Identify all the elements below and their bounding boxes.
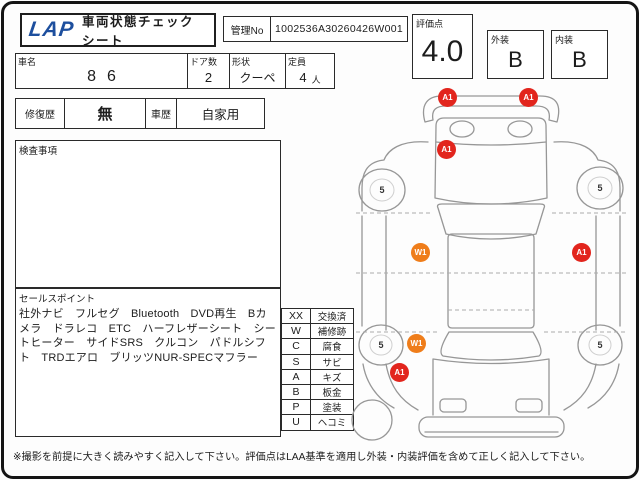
inspection-items-content xyxy=(16,157,280,159)
rear-bumper xyxy=(419,417,564,437)
legend-meaning: 補修跡 xyxy=(311,324,354,339)
inspection-items-box: 検査事項 xyxy=(15,140,281,288)
capacity-value-wrap: 4人 xyxy=(286,68,334,88)
legend-meaning: キズ xyxy=(311,369,354,384)
damage-marker-left-rear-arch: W1 xyxy=(407,334,426,353)
doors-label: ドア数 xyxy=(188,54,229,68)
legend-meaning: 腐食 xyxy=(311,339,354,354)
legend-row: P塗装 xyxy=(282,400,354,415)
damage-marker-left-rear-quarter: A1 xyxy=(390,363,409,382)
legend-row: Aキズ xyxy=(282,369,354,384)
sales-points-box: セールスポイント 社外ナビ フルセグ Bluetooth DVD再生 Bカメラ … xyxy=(15,288,281,437)
sales-points-label: セールスポイント xyxy=(16,289,280,305)
sales-points-content: 社外ナビ フルセグ Bluetooth DVD再生 Bカメラ ドラレコ ETC … xyxy=(16,305,280,365)
header-logo-box: LAP 車両状態チェックシート xyxy=(20,13,216,47)
legend-code: B xyxy=(282,384,311,399)
exterior-score-value: B xyxy=(488,42,543,78)
tail-light-left xyxy=(440,399,466,412)
vehicle-name-cell: 車名 86 xyxy=(16,54,187,88)
roof xyxy=(448,234,534,328)
right-rear-quarter xyxy=(564,364,596,410)
vehicle-check-sheet: LAP 車両状態チェックシート 管理No 1002536A30260426W00… xyxy=(0,0,640,480)
legend-code: P xyxy=(282,400,311,415)
exterior-score-box: 外装 B xyxy=(487,30,544,79)
damage-marker-hood-left: A1 xyxy=(437,140,456,159)
repair-history-row: 修復歴 無 車歴 自家用 xyxy=(15,98,265,129)
capacity-value: 4 xyxy=(299,70,306,85)
legend-row: W補修跡 xyxy=(282,324,354,339)
legend-row: C腐食 xyxy=(282,339,354,354)
management-no-label: 管理No xyxy=(224,17,271,41)
washer-nozzle-left xyxy=(450,121,474,137)
legend-code: A xyxy=(282,369,311,384)
management-no-box: 管理No 1002536A30260426W001 xyxy=(223,16,408,42)
overall-score-box: 評価点 4.0 xyxy=(412,14,473,79)
trunk xyxy=(433,359,549,415)
lap-logo: LAP xyxy=(27,18,75,42)
tire-depth-rear-left: 5 xyxy=(373,337,389,353)
legend-meaning: サビ xyxy=(311,354,354,369)
body-shape-label: 形状 xyxy=(230,54,285,68)
interior-score-value: B xyxy=(552,42,607,78)
legend-row: XX交換済 xyxy=(282,309,354,324)
legend-meaning: 塗装 xyxy=(311,400,354,415)
car-outline-svg xyxy=(350,80,635,442)
footer-note: ※撮影を前提に大きく読みやすく記入して下さい。評価点はLAA基準を適用し外装・内… xyxy=(13,448,635,463)
legend-row: Sサビ xyxy=(282,354,354,369)
tire-depth-front-left: 5 xyxy=(374,182,390,198)
doors-value: 2 xyxy=(188,68,229,88)
legend-code: S xyxy=(282,354,311,369)
legend-row: B板金 xyxy=(282,384,354,399)
hood xyxy=(435,118,547,204)
right-rear-quarter-outer xyxy=(588,364,619,408)
vehicle-name-label: 車名 xyxy=(16,54,187,68)
legend-code: C xyxy=(282,339,311,354)
legend-code: XX xyxy=(282,309,311,324)
legend-code: W xyxy=(282,324,311,339)
capacity-unit: 人 xyxy=(312,73,321,86)
vehicle-info-row: 車名 86 ドア数 2 形状 クーペ 定員 4人 xyxy=(15,53,335,89)
legend-meaning: 交換済 xyxy=(311,309,354,324)
damage-marker-left-door: W1 xyxy=(411,243,430,262)
legend-meaning: 板金 xyxy=(311,384,354,399)
capacity-label: 定員 xyxy=(286,54,334,68)
tire-depth-rear-right: 5 xyxy=(592,337,608,353)
repair-history-value: 無 xyxy=(64,99,145,128)
sheet-title: 車両状態チェックシート xyxy=(82,11,207,49)
washer-nozzle-right xyxy=(508,121,532,137)
car-history-value: 自家用 xyxy=(176,99,264,128)
capacity-cell: 定員 4人 xyxy=(285,54,334,88)
car-condition-diagram xyxy=(350,80,635,442)
car-history-label: 車歴 xyxy=(145,99,176,128)
legend-code: U xyxy=(282,415,311,430)
legend-row: Uヘコミ xyxy=(282,415,354,430)
tire-depth-front-right: 5 xyxy=(592,180,608,196)
inspection-items-label: 検査事項 xyxy=(16,141,280,157)
damage-code-legend: XX交換済 W補修跡 C腐食 Sサビ Aキズ B板金 P塗装 Uヘコミ xyxy=(281,308,354,431)
tail-light-right xyxy=(516,399,542,412)
rear-window xyxy=(441,332,541,360)
overall-score-value: 4.0 xyxy=(413,26,472,78)
vehicle-name-value: 86 xyxy=(16,68,187,88)
interior-score-box: 内装 B xyxy=(551,30,608,79)
left-front-fender xyxy=(362,142,428,211)
repair-history-label: 修復歴 xyxy=(16,99,64,128)
doors-cell: ドア数 2 xyxy=(187,54,229,88)
right-front-fender xyxy=(554,142,620,211)
damage-marker-right-door: A1 xyxy=(572,243,591,262)
damage-marker-front-bumper-left: A1 xyxy=(438,88,457,107)
spare-tire xyxy=(352,400,392,440)
damage-marker-front-bumper-right: A1 xyxy=(519,88,538,107)
legend-meaning: ヘコミ xyxy=(311,415,354,430)
body-shape-value: クーペ xyxy=(230,68,285,88)
body-shape-cell: 形状 クーペ xyxy=(229,54,285,88)
management-no-value: 1002536A30260426W001 xyxy=(271,17,407,41)
